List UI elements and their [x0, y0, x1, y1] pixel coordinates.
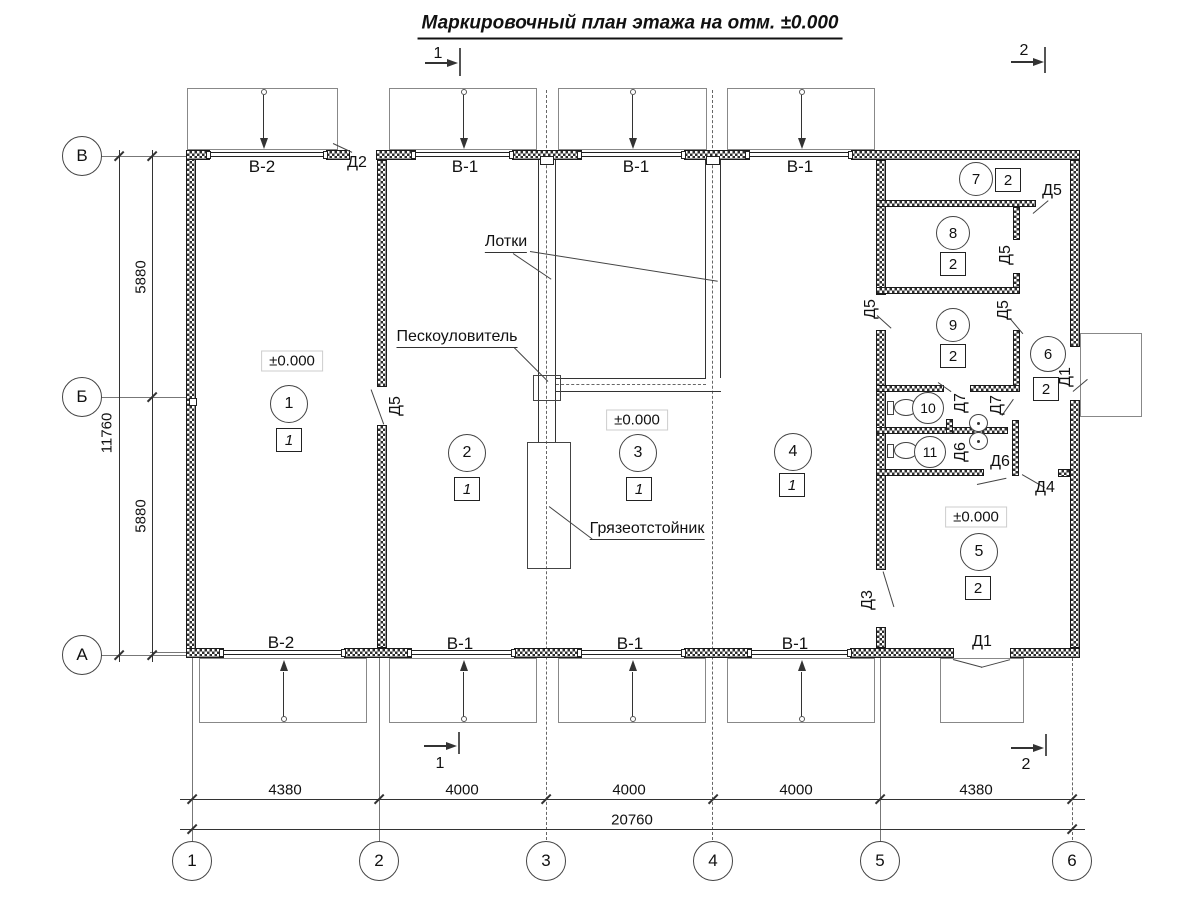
floor-number: 2 — [1042, 381, 1050, 398]
gate-stop — [681, 649, 686, 657]
floor-type-room2: 1 — [454, 477, 480, 501]
gate-stop — [411, 151, 416, 159]
gate-stop — [747, 649, 752, 657]
room-circle-2: 2 — [448, 434, 486, 472]
wall — [1013, 330, 1020, 387]
wall — [1013, 207, 1020, 240]
tray-centerline — [556, 384, 706, 385]
wall — [876, 287, 1020, 294]
section-arrowhead — [1033, 58, 1044, 66]
floor-number: 2 — [974, 580, 982, 597]
room-circle-9: 9 — [936, 308, 970, 342]
floor-type-room3: 1 — [626, 477, 652, 501]
leader-trays-2 — [530, 251, 718, 282]
door-label-d1-bottom: Д1 — [972, 633, 992, 651]
axis-extension-col2 — [379, 658, 380, 843]
floor-type-room7: 2 — [995, 168, 1021, 192]
gate-label-v2-bottom: В-2 — [268, 633, 294, 653]
axis-circle-col-1: 1 — [172, 841, 212, 881]
wall — [876, 427, 1008, 434]
floor-number: 2 — [1004, 172, 1012, 189]
axis-circle-row-a: А — [62, 635, 102, 675]
room-number: 4 — [789, 443, 798, 461]
wall — [1010, 648, 1080, 658]
ramp-arrowhead — [260, 138, 268, 149]
gate-stop — [407, 649, 412, 657]
floor-number: 1 — [463, 481, 471, 498]
room-number: 5 — [975, 543, 984, 561]
elevation-mark-room1: ±0.000 — [261, 351, 323, 372]
door-label-d7-2: Д7 — [988, 395, 1006, 415]
wall — [344, 648, 412, 658]
door-label-d6-2: Д6 — [990, 453, 1010, 471]
gate-stop — [848, 151, 853, 159]
elevation-mark-room5: ±0.000 — [945, 507, 1007, 528]
door-label-d5-room9-right: Д5 — [995, 300, 1013, 320]
wall — [376, 150, 416, 160]
door-label-d3: Д3 — [859, 590, 877, 610]
axis-label: 1 — [187, 851, 196, 871]
door-label-d7-1: Д7 — [952, 393, 970, 413]
section-cut-bar — [1045, 734, 1047, 756]
floor-plan-canvas: 5880 11760 5880 4380 4000 4000 4000 4380… — [0, 0, 1200, 900]
section-arrowhead — [447, 59, 458, 67]
tray-channel-horiz-edge — [555, 391, 721, 392]
gate-stop — [511, 649, 516, 657]
section-label-1-bottom: 1 — [436, 755, 445, 773]
room-number: 2 — [463, 444, 472, 462]
room-number: 7 — [972, 171, 980, 188]
leader-d6 — [977, 478, 1007, 485]
gate-stop — [745, 151, 750, 159]
axis-line-col4 — [712, 90, 713, 845]
ramp-arrowhead — [280, 660, 288, 671]
dim-text-4000-3: 4000 — [779, 782, 812, 799]
tray-channel-horiz-edge — [555, 378, 706, 379]
ramp-dot — [261, 89, 267, 95]
axis-label: 2 — [374, 851, 383, 871]
axis-label: 5 — [875, 851, 884, 871]
ramp-arrowhead — [460, 660, 468, 671]
floor-number: 1 — [788, 477, 796, 494]
axis-circle-col-3: 3 — [526, 841, 566, 881]
wall — [876, 200, 1036, 207]
ramp-arrowhead — [798, 138, 806, 149]
door-label-d6-1: Д6 — [952, 442, 970, 462]
room-number: 9 — [949, 317, 957, 334]
gate-label-v1-top-3: В-1 — [787, 157, 813, 177]
room-number: 8 — [949, 225, 957, 242]
wall — [876, 385, 944, 392]
annotation-mud-settler: Грязеотстойник — [590, 520, 705, 540]
axis-label: Б — [76, 387, 87, 407]
channel-wall-pass — [706, 156, 720, 165]
floor-type-room1: 1 — [276, 428, 302, 452]
door-label-d5-room9-left: Д5 — [862, 299, 880, 319]
room-circle-4: 4 — [774, 433, 812, 471]
ramp-arrow-line — [632, 672, 633, 718]
axis-label: В — [76, 146, 87, 166]
floor-number: 1 — [635, 481, 643, 498]
dim-text-4000-1: 4000 — [445, 782, 478, 799]
dim-text-4380-1: 4380 — [268, 782, 301, 799]
section-arrowhead — [446, 742, 457, 750]
axis-line-col6 — [1072, 658, 1073, 845]
door-label-d1-right: Д1 — [1057, 367, 1075, 387]
dim-line-left-total — [119, 150, 120, 662]
annotation-trays: Лотки — [485, 233, 527, 253]
door-label-d5-room1: Д5 — [387, 396, 405, 416]
ramp-arrowhead — [798, 660, 806, 671]
door-label-d2: Д2 — [347, 154, 367, 172]
dim-text-20760: 20760 — [611, 812, 653, 829]
door-label-d4: Д4 — [1035, 479, 1055, 497]
wall — [850, 648, 954, 658]
axis-extension-col1 — [192, 658, 193, 843]
axis-label: 4 — [708, 851, 717, 871]
ramp-arrowhead — [460, 138, 468, 149]
dim-text-11760: 11760 — [99, 413, 116, 454]
ramp-dot — [630, 89, 636, 95]
drawing-title: Маркировочный план этажа на отм. ±0.000 — [418, 13, 843, 40]
tray-channel-right-edge — [720, 160, 721, 378]
tray-channel-right-edge — [705, 160, 706, 378]
gate-label-v1-top-2: В-1 — [623, 157, 649, 177]
axis-label: 3 — [541, 851, 550, 871]
floor-type-room4: 1 — [779, 473, 805, 497]
sink-dot — [977, 440, 980, 443]
floor-type-room9: 2 — [940, 344, 966, 368]
section-cut-bar — [1044, 47, 1046, 73]
wall — [876, 627, 886, 648]
wall — [514, 648, 582, 658]
door-label-d5-room7: Д5 — [1042, 182, 1062, 200]
wall — [970, 385, 1020, 392]
toilet-tank — [887, 401, 894, 415]
section-cut-bar — [458, 732, 460, 754]
room-circle-11: 11 — [914, 436, 946, 468]
dim-text-4000-2: 4000 — [612, 782, 645, 799]
section-label-2-bottom: 2 — [1022, 756, 1031, 774]
floor-type-room8: 2 — [940, 252, 966, 276]
ramp-arrow-line — [801, 672, 802, 718]
gate-label-v1-bottom-2: В-1 — [617, 634, 643, 654]
gate-stop — [219, 649, 224, 657]
room-number: 11 — [923, 444, 938, 460]
wall — [1070, 160, 1080, 347]
ramp-dot — [281, 716, 287, 722]
ramp-dot — [799, 89, 805, 95]
room-circle-6: 6 — [1030, 336, 1066, 372]
section-label-2-top: 2 — [1020, 42, 1029, 60]
ramp-dot — [461, 89, 467, 95]
dim-line-bottom-total — [180, 829, 1085, 830]
ramp-arrow-line — [463, 95, 464, 139]
axis-row-line-v — [101, 156, 186, 157]
ramp-dot — [461, 716, 467, 722]
gate-stop — [577, 151, 582, 159]
wall — [1012, 420, 1019, 476]
dim-line-left-spans — [152, 150, 153, 662]
gate-stop — [577, 649, 582, 657]
door-label-d5-room8: Д5 — [997, 245, 1015, 265]
room-circle-7: 7 — [959, 162, 993, 196]
gate-label-v1-bottom-1: В-1 — [447, 634, 473, 654]
door-leaf-d3 — [882, 571, 894, 607]
floor-type-room6: 2 — [1033, 377, 1059, 401]
ramp-arrow-line — [283, 672, 284, 718]
room-circle-10: 10 — [912, 392, 944, 424]
axis-marker-b — [189, 398, 197, 406]
wall — [377, 425, 387, 648]
gate-label-v1-top-1: В-1 — [452, 157, 478, 177]
gate-stop — [847, 649, 852, 657]
toilet-tank — [887, 444, 894, 458]
wall — [876, 160, 886, 295]
wall — [876, 469, 984, 476]
ramp-arrow-line — [463, 672, 464, 718]
axis-circle-row-v: В — [62, 136, 102, 176]
axis-circle-row-b: Б — [62, 377, 102, 417]
sink-dot — [977, 422, 980, 425]
section-cut-bar — [459, 48, 461, 76]
floor-number: 1 — [285, 432, 293, 449]
axis-circle-col-6: 6 — [1052, 841, 1092, 881]
floor-number: 2 — [949, 256, 957, 273]
axis-circle-col-4: 4 — [693, 841, 733, 881]
gate-stop — [681, 151, 686, 159]
section-label-1-top: 1 — [434, 45, 443, 63]
ramp-arrowhead — [629, 138, 637, 149]
ramp-dot — [799, 716, 805, 722]
floor-number: 2 — [949, 348, 957, 365]
gate-stop — [509, 151, 514, 159]
axis-label: 6 — [1067, 851, 1076, 871]
room-number: 3 — [634, 444, 643, 462]
ramp-arrow-line — [801, 95, 802, 139]
wall — [1058, 469, 1070, 477]
door-leaf-d5-room1 — [370, 389, 384, 424]
axis-row-line-b — [101, 397, 186, 398]
axis-row-line-a — [101, 655, 186, 656]
leader-sand-trap — [514, 347, 549, 382]
gate-label-v2-top: В-2 — [249, 157, 275, 177]
entrance-porch — [1080, 333, 1142, 417]
room-circle-8: 8 — [936, 216, 970, 250]
gate-stop — [341, 649, 346, 657]
wall — [851, 150, 1080, 160]
annotation-sand-trap: Пескоуловитель — [397, 328, 518, 348]
room-number: 10 — [920, 400, 936, 416]
dim-text-5880-top: 5880 — [133, 260, 150, 293]
ramp-arrowhead — [629, 660, 637, 671]
wall — [377, 160, 387, 387]
axis-circle-col-5: 5 — [860, 841, 900, 881]
wall — [684, 648, 752, 658]
room-circle-5: 5 — [960, 533, 998, 571]
wall — [946, 419, 953, 434]
dim-text-5880-bottom: 5880 — [133, 499, 150, 532]
elevation-mark-room3: ±0.000 — [606, 410, 668, 431]
gate-stop — [206, 151, 211, 159]
wall — [1070, 400, 1080, 648]
gate-label-v1-bottom-3: В-1 — [782, 634, 808, 654]
gate-stop — [323, 151, 328, 159]
section-arrowhead — [1033, 744, 1044, 752]
ramp-dot — [630, 716, 636, 722]
room-circle-1: 1 — [270, 385, 308, 423]
ramp-arrow-line — [263, 95, 264, 139]
room-number: 6 — [1044, 346, 1052, 363]
axis-circle-col-2: 2 — [359, 841, 399, 881]
floor-type-room5: 2 — [965, 576, 991, 600]
dim-line-bottom-spans — [180, 799, 1085, 800]
axis-extension-col5 — [880, 658, 881, 843]
axis-label: А — [76, 645, 87, 665]
dim-text-4380-2: 4380 — [959, 782, 992, 799]
room-circle-3: 3 — [619, 434, 657, 472]
room-number: 1 — [285, 395, 294, 413]
wall — [876, 330, 886, 570]
channel-wall-pass — [540, 156, 554, 165]
entrance-step — [940, 658, 1024, 723]
ramp-arrow-line — [632, 95, 633, 139]
